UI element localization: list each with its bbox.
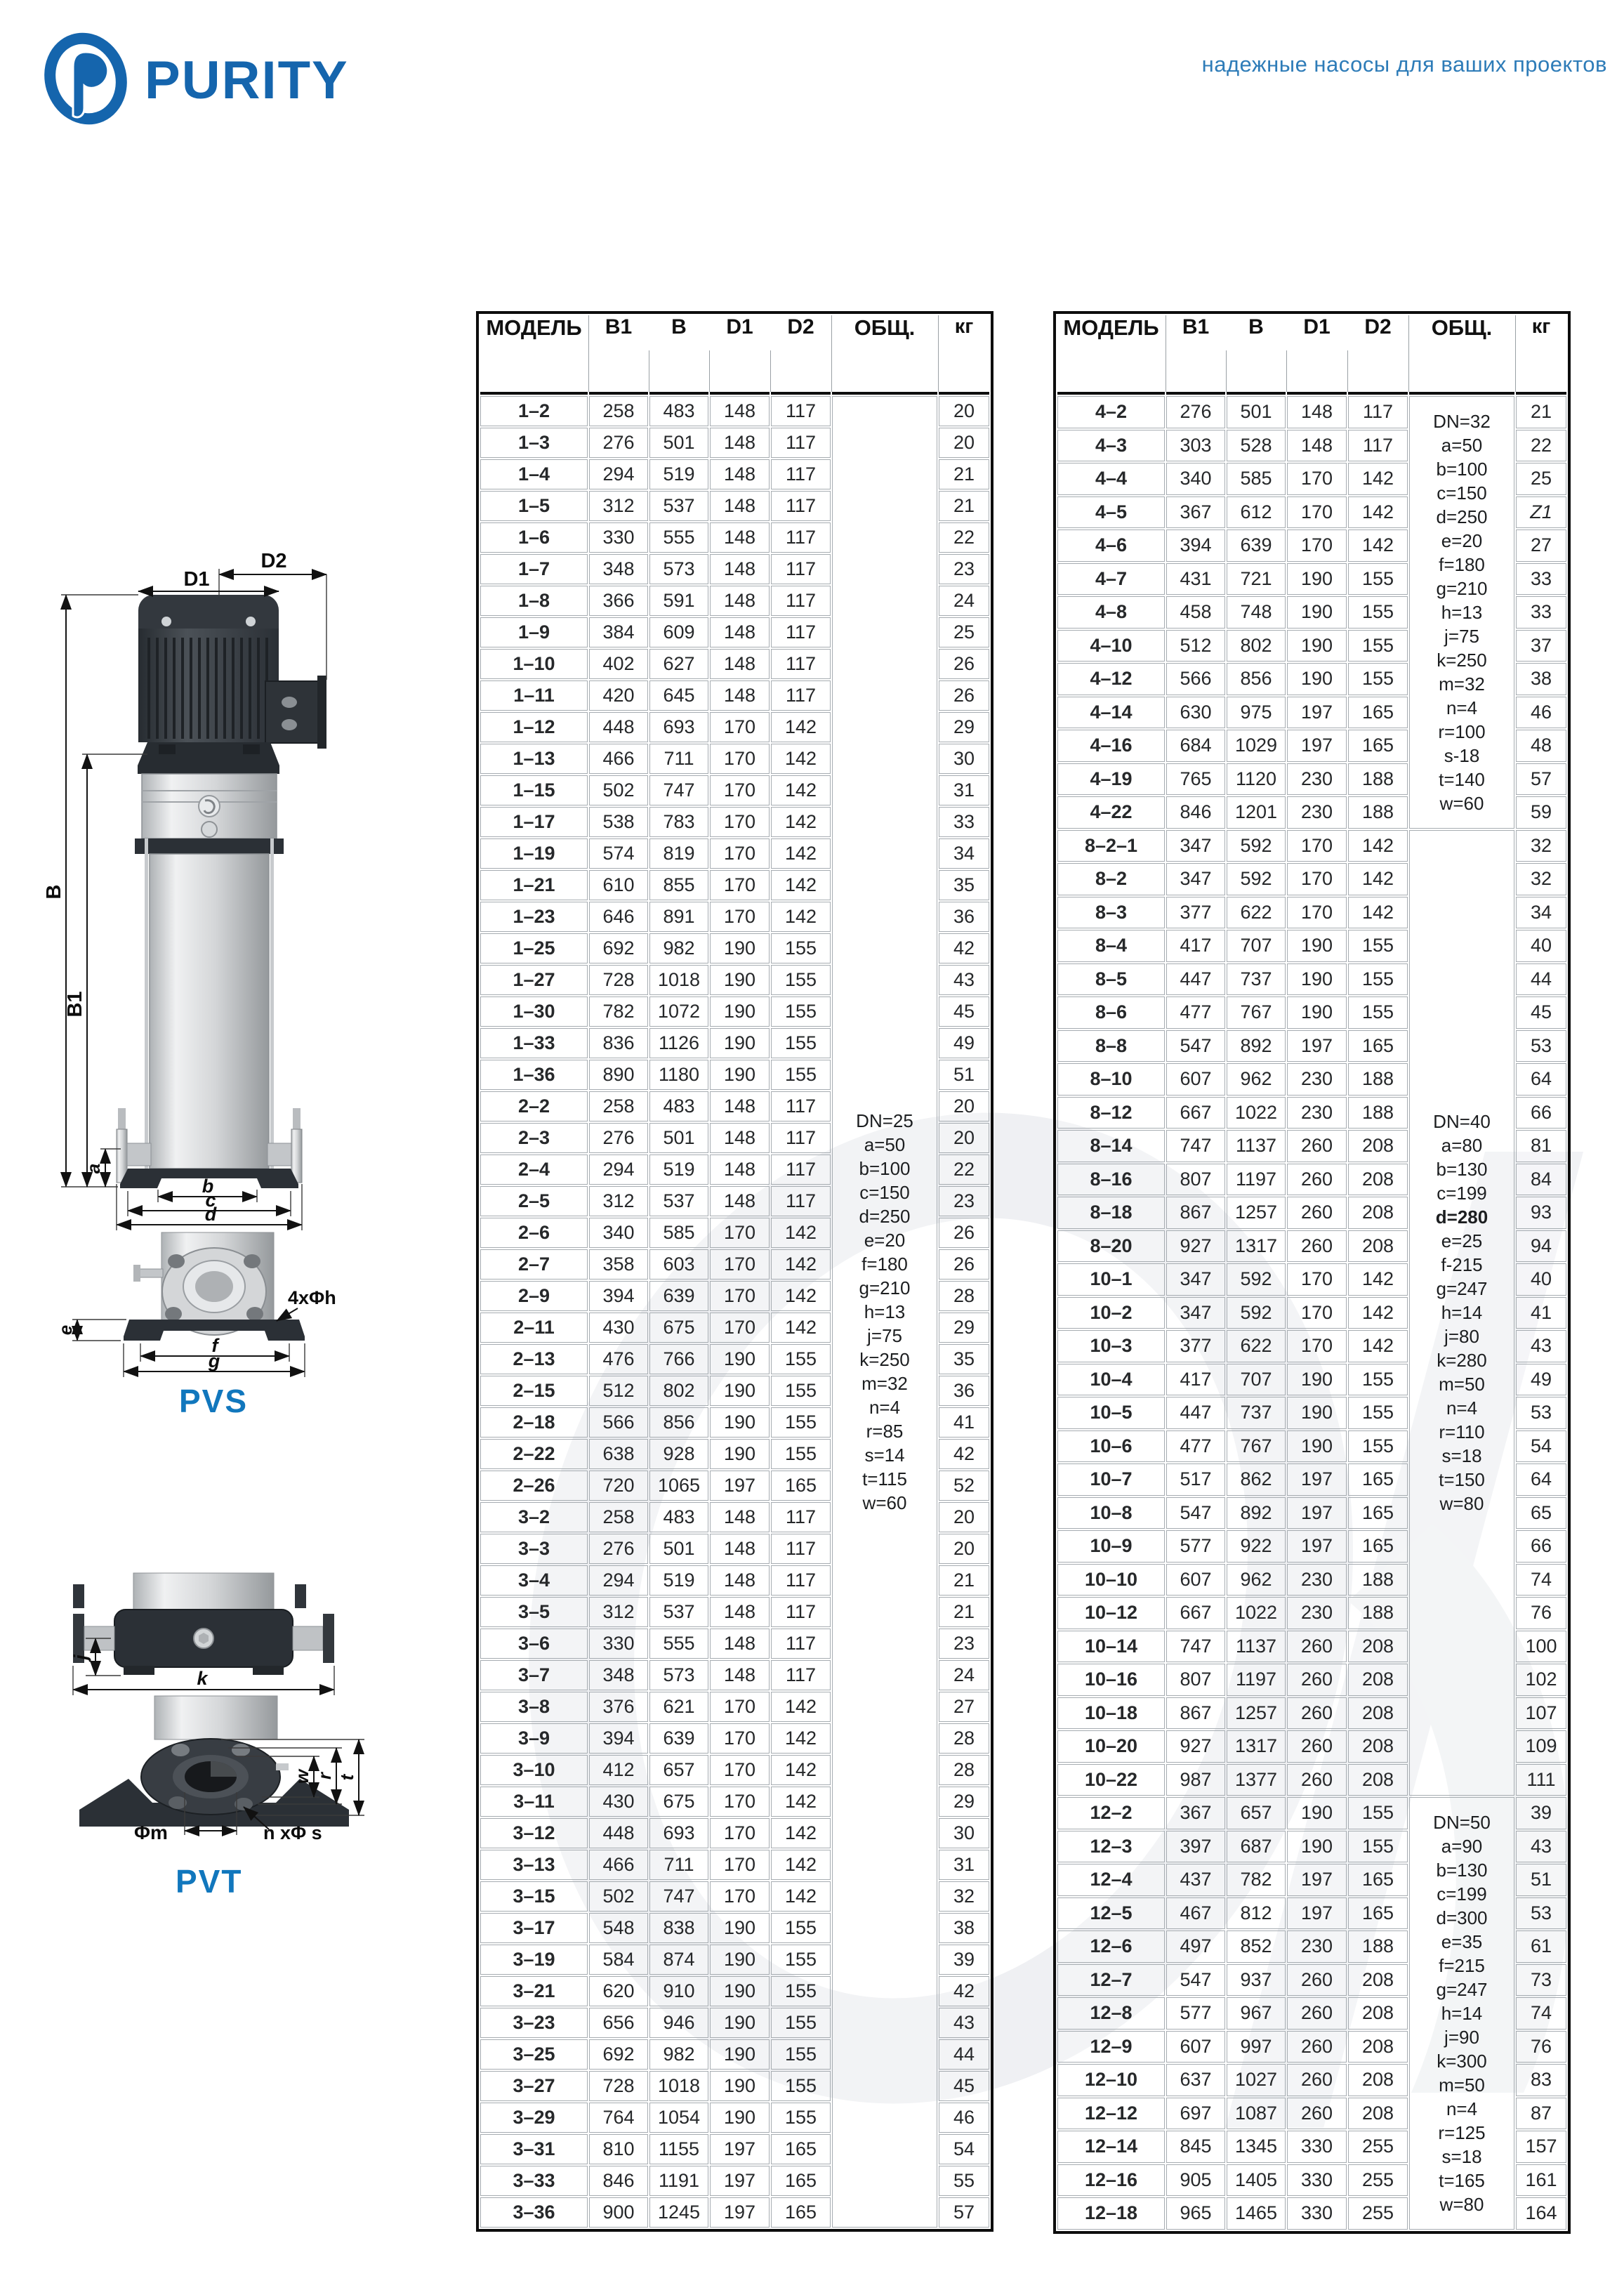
- dimension-cell: 155: [771, 1945, 831, 1975]
- note-line: w=60: [1410, 791, 1514, 815]
- dimension-cell: 347: [1166, 863, 1225, 895]
- model-cell: 2–13: [480, 1344, 588, 1374]
- weight-cell: 94: [1516, 1230, 1566, 1263]
- dimension-cell: 639: [649, 1281, 708, 1311]
- weight-cell: 21: [1516, 396, 1566, 428]
- dimension-cell: 609: [649, 617, 708, 647]
- dimension-cell: 905: [1166, 2164, 1225, 2197]
- note-line: r=100: [1410, 720, 1514, 744]
- dimension-cell: 997: [1227, 2031, 1286, 2063]
- weight-cell: 22: [939, 1155, 989, 1185]
- dimension-cell: 982: [649, 933, 708, 963]
- dimension-cell: 208: [1348, 1164, 1408, 1196]
- dimension-cell: 170: [1287, 863, 1347, 895]
- dimension-cell: 170: [1287, 1297, 1347, 1329]
- stage-seat: [135, 838, 284, 854]
- dimension-cell: 155: [771, 2071, 831, 2101]
- dimension-cell: 117: [771, 522, 831, 553]
- dimension-cell: 812: [1227, 1897, 1286, 1930]
- dimension-cell: 927: [1166, 1730, 1225, 1763]
- dimension-cell: 707: [1227, 1364, 1286, 1396]
- model-cell: 4–5: [1057, 496, 1165, 529]
- model-cell: 4–14: [1057, 697, 1165, 729]
- note-line: b=100: [1410, 457, 1514, 481]
- dimension-cell: 1197: [1227, 1664, 1286, 1696]
- model-cell: 10–1: [1057, 1263, 1165, 1296]
- model-cell: 10–3: [1057, 1330, 1165, 1362]
- note-line: d=250: [1410, 505, 1514, 529]
- dimension-cell: 340: [1166, 463, 1225, 495]
- dimension-cell: 117: [771, 1534, 831, 1564]
- dimension-cell: 982: [649, 2039, 708, 2070]
- dimension-cell: 1191: [649, 2166, 708, 2196]
- note-line: w=80: [1410, 2192, 1514, 2216]
- model-cell: 1–17: [480, 807, 588, 837]
- dimension-cell: 142: [1348, 863, 1408, 895]
- dimension-cell: 170: [710, 712, 770, 742]
- model-cell: 8–2–1: [1057, 830, 1165, 862]
- dimension-cell: 188: [1348, 763, 1408, 796]
- dimension-cell: 711: [649, 1850, 708, 1880]
- dimension-cell: 1180: [649, 1060, 708, 1090]
- common-dimensions-note: DN=32a=50b=100c=150d=250e=20f=180g=210h=…: [1409, 396, 1514, 829]
- weight-cell: 74: [1516, 1997, 1566, 2030]
- dimension-cell: 548: [589, 1913, 648, 1943]
- dim-label-base-d: d: [205, 1204, 217, 1225]
- dimension-cell: 260: [1287, 2064, 1347, 2096]
- weight-cell: 93: [1516, 1197, 1566, 1229]
- dimension-cell: 394: [589, 1281, 648, 1311]
- dimension-cell: 170: [1287, 897, 1347, 929]
- model-cell: 12–8: [1057, 1997, 1165, 2030]
- note-line: DN=32: [1410, 409, 1514, 433]
- dimension-cell: 148: [710, 554, 770, 584]
- dimension-cell: 190: [1287, 563, 1347, 596]
- dimension-cell: 155: [771, 996, 831, 1027]
- model-cell: 10–14: [1057, 1631, 1165, 1663]
- dimension-cell: 294: [589, 1155, 648, 1185]
- dimension-cell: 260: [1287, 1631, 1347, 1663]
- model-cell: 4–4: [1057, 463, 1165, 495]
- dimension-cell: 483: [649, 396, 708, 426]
- model-cell: 8–8: [1057, 1030, 1165, 1063]
- dimension-cell: 447: [1166, 963, 1225, 996]
- weight-cell: 28: [939, 1723, 989, 1754]
- dimension-cell: 190: [710, 996, 770, 1027]
- dimension-cell: 148: [710, 1660, 770, 1690]
- dimension-cell: 807: [1166, 1164, 1225, 1196]
- dimension-cell: 693: [649, 712, 708, 742]
- note-line: b=130: [1410, 1858, 1514, 1882]
- note-line: k=280: [1410, 1348, 1514, 1372]
- dimension-cell: 155: [1348, 663, 1408, 695]
- model-cell: 10–8: [1057, 1497, 1165, 1530]
- dimension-cell: 1137: [1227, 1631, 1286, 1663]
- dimension-cell: 155: [771, 965, 831, 995]
- note-line: e=20: [833, 1228, 937, 1252]
- note-line: a=50: [833, 1133, 937, 1157]
- model-cell: 4–8: [1057, 596, 1165, 629]
- note-line: c=150: [833, 1180, 937, 1204]
- dimension-cell: 117: [771, 428, 831, 458]
- note-line: n=4: [1410, 696, 1514, 720]
- weight-cell: 43: [1516, 1831, 1566, 1863]
- dimension-cell: 260: [1287, 1130, 1347, 1162]
- dimension-cell: 155: [1348, 996, 1408, 1029]
- weight-cell: 100: [1516, 1631, 1566, 1663]
- dimension-cell: 117: [771, 554, 831, 584]
- dimension-cell: 197: [1287, 1897, 1347, 1930]
- dimension-cell: 675: [649, 1313, 708, 1343]
- dimension-cell: 208: [1348, 2064, 1408, 2096]
- dimension-cell: 142: [771, 712, 831, 742]
- model-cell: 3–10: [480, 1755, 588, 1785]
- note-line: g=210: [1410, 577, 1514, 600]
- dimension-cell: 377: [1166, 1330, 1225, 1362]
- dimension-cell: 607: [1166, 1564, 1225, 1596]
- dimension-cell: 148: [710, 1186, 770, 1216]
- dimension-cell: 890: [589, 1060, 648, 1090]
- dimension-cell: 230: [1287, 1597, 1347, 1629]
- column-header-1: B1: [589, 315, 648, 395]
- model-cell: 2–4: [480, 1155, 588, 1185]
- dimension-cell: 190: [1287, 1797, 1347, 1829]
- table-row: 1–2258483148117DN=25a=50b=100c=150d=250e…: [480, 396, 989, 426]
- dimension-cell: 675: [649, 1787, 708, 1817]
- dimension-cell: 165: [771, 1471, 831, 1501]
- dimension-cell: 142: [1348, 897, 1408, 929]
- dimension-cell: 566: [589, 1407, 648, 1438]
- weight-cell: 33: [1516, 563, 1566, 596]
- dimension-cell: 312: [589, 1186, 648, 1216]
- dimension-cell: 170: [710, 744, 770, 774]
- dimension-cell: 208: [1348, 2098, 1408, 2130]
- dimension-cell: 142: [1348, 529, 1408, 562]
- dimension-cell: 765: [1166, 763, 1225, 796]
- pvs-side-view-diagram: D2 D1 B B1 a b c d: [42, 555, 337, 1232]
- dimension-cell: 155: [771, 2008, 831, 2038]
- note-line: f=180: [1410, 553, 1514, 577]
- note-line: f=215: [1410, 1954, 1514, 1978]
- dimension-cell: 190: [1287, 930, 1347, 962]
- model-cell: 4–12: [1057, 663, 1165, 695]
- note-line: m=50: [1410, 1372, 1514, 1396]
- model-cell: 8–10: [1057, 1063, 1165, 1096]
- note-line: n=4: [1410, 2097, 1514, 2121]
- dimension-cell: 517: [1166, 1463, 1225, 1496]
- weight-cell: 25: [939, 617, 989, 647]
- dimension-cell: 197: [1287, 1530, 1347, 1563]
- dimension-cell: 687: [1227, 1831, 1286, 1863]
- weight-cell: 54: [1516, 1430, 1566, 1463]
- dimension-cell: 377: [1166, 897, 1225, 929]
- pvt-side-view-diagram: j k: [42, 1573, 337, 1698]
- model-cell: 12–7: [1057, 1964, 1165, 1997]
- weight-cell: 66: [1516, 1097, 1566, 1129]
- dimension-cell: 190: [1287, 630, 1347, 662]
- weight-cell: 45: [1516, 996, 1566, 1029]
- note-line: s=18: [1410, 1444, 1514, 1468]
- dimension-cell: 922: [1227, 1530, 1286, 1563]
- note-line: m=50: [1410, 2073, 1514, 2097]
- dimension-cell: 638: [589, 1439, 648, 1469]
- dimension-cell: 230: [1287, 1063, 1347, 1096]
- dimension-cell: 607: [1166, 1063, 1225, 1096]
- model-cell: 3–23: [480, 2008, 588, 2038]
- weight-cell: 33: [1516, 596, 1566, 629]
- pvs-flange-view-diagram: e f g 4xΦh: [56, 1232, 358, 1381]
- weight-cell: 39: [939, 1945, 989, 1975]
- weight-cell: 84: [1516, 1164, 1566, 1196]
- note-line: j=75: [1410, 624, 1514, 648]
- weight-cell: 26: [939, 1218, 989, 1248]
- dimension-cell: 585: [649, 1218, 708, 1248]
- dimension-cell: 592: [1227, 1297, 1286, 1329]
- dimension-cell: 547: [1166, 1964, 1225, 1997]
- model-cell: 8–14: [1057, 1130, 1165, 1162]
- dimension-cell: 1405: [1227, 2164, 1286, 2197]
- dimension-cell: 684: [1166, 730, 1225, 762]
- model-cell: 12–6: [1057, 1930, 1165, 1963]
- dimension-cell: 170: [1287, 463, 1347, 495]
- note-line: f=180: [833, 1252, 937, 1276]
- dimension-cell: 155: [1348, 1397, 1408, 1429]
- logo-wordmark: PURITY: [145, 51, 349, 110]
- dimension-cell: 148: [710, 649, 770, 679]
- model-cell: 8–5: [1057, 963, 1165, 996]
- dimension-cell: 476: [589, 1344, 648, 1374]
- dimension-cell: 417: [1166, 1364, 1225, 1396]
- dimension-cell: 519: [649, 459, 708, 489]
- weight-cell: 44: [939, 2039, 989, 2070]
- dimension-cell: 117: [771, 1660, 831, 1690]
- dimension-cell: 148: [710, 1597, 770, 1627]
- dimension-cell: 512: [1166, 630, 1225, 662]
- note-line: m=32: [833, 1371, 937, 1395]
- model-cell: 1–2: [480, 396, 588, 426]
- dimension-cell: 892: [1227, 1030, 1286, 1063]
- dimension-cell: 1065: [649, 1471, 708, 1501]
- dimension-cell: 165: [771, 2197, 831, 2228]
- dimension-cell: 1022: [1227, 1597, 1286, 1629]
- note-line: s-18: [1410, 744, 1514, 768]
- model-cell: 3–33: [480, 2166, 588, 2196]
- model-cell: 2–26: [480, 1471, 588, 1501]
- dim-label-phi-m: Φm: [134, 1822, 168, 1843]
- dimension-cell: 208: [1348, 1997, 1408, 2030]
- dimension-cell: 170: [710, 1249, 770, 1280]
- dimension-cell: 697: [1166, 2098, 1225, 2130]
- dimension-cell: 366: [589, 586, 648, 616]
- model-cell: 12–10: [1057, 2064, 1165, 2096]
- dimension-cell: 117: [771, 1565, 831, 1596]
- dimension-cell: 170: [710, 1692, 770, 1722]
- weight-cell: 20: [939, 1534, 989, 1564]
- dimension-cell: 537: [649, 491, 708, 521]
- weight-cell: 22: [1516, 430, 1566, 462]
- model-cell: 2–6: [480, 1218, 588, 1248]
- dimension-cell: 165: [1348, 1864, 1408, 1896]
- weight-cell: 51: [1516, 1864, 1566, 1896]
- weight-cell: 23: [939, 554, 989, 584]
- dimension-cell: 431: [1166, 563, 1225, 596]
- dimension-cell: 692: [589, 2039, 648, 2070]
- column-header-2: B: [649, 315, 708, 395]
- model-cell: 1–6: [480, 522, 588, 553]
- weight-cell: 33: [939, 807, 989, 837]
- model-cell: 1–3: [480, 428, 588, 458]
- dimension-cell: 946: [649, 2008, 708, 2038]
- dim-label-e: e: [55, 1325, 76, 1335]
- dimension-cell: 260: [1287, 1197, 1347, 1229]
- note-line: w=80: [1410, 1492, 1514, 1515]
- weight-cell: 30: [939, 744, 989, 774]
- model-cell: 3–21: [480, 1976, 588, 2006]
- dimension-cell: 142: [1348, 463, 1408, 495]
- note-line: c=199: [1410, 1181, 1514, 1205]
- dimension-cell: 142: [771, 1723, 831, 1754]
- weight-cell: 53: [1516, 1030, 1566, 1063]
- table-row: 8–2–1347592170142DN=40a=80b=130c=199d=28…: [1057, 830, 1566, 862]
- dimension-cell: 197: [1287, 730, 1347, 762]
- model-cell: 8–20: [1057, 1230, 1165, 1263]
- model-cell: 2–7: [480, 1249, 588, 1280]
- model-cell: 4–3: [1057, 430, 1165, 462]
- weight-cell: 59: [1516, 796, 1566, 829]
- dimension-cell: 737: [1227, 1397, 1286, 1429]
- dimension-cell: 142: [771, 1281, 831, 1311]
- dimension-cell: 721: [1227, 563, 1286, 596]
- dimension-cell: 170: [710, 870, 770, 900]
- note-line: b=100: [833, 1157, 937, 1180]
- dimension-cell: 197: [1287, 1030, 1347, 1063]
- dimension-cell: 720: [589, 1471, 648, 1501]
- dimension-cell: 148: [710, 491, 770, 521]
- common-dimensions-note: DN=40a=80b=130c=199d=280e=25f-215g=247h=…: [1409, 830, 1514, 1796]
- dimension-cell: 142: [771, 902, 831, 932]
- dimension-cell: 230: [1287, 763, 1347, 796]
- dimension-cell: 197: [1287, 1463, 1347, 1496]
- model-cell: 4–16: [1057, 730, 1165, 762]
- dimension-cell: 501: [649, 1123, 708, 1153]
- dimension-cell: 155: [771, 1060, 831, 1090]
- dimension-cell: 276: [589, 428, 648, 458]
- dimension-cell: 1027: [1227, 2064, 1286, 2096]
- dimension-cell: 962: [1227, 1063, 1286, 1096]
- model-cell: 10–10: [1057, 1564, 1165, 1596]
- model-cell: 2–22: [480, 1439, 588, 1469]
- column-header-5: ОБЩ.: [832, 315, 937, 395]
- weight-cell: 38: [1516, 663, 1566, 695]
- weight-cell: 35: [939, 1344, 989, 1374]
- dimension-cell: 197: [1287, 697, 1347, 729]
- dimension-cell: 577: [1166, 1997, 1225, 2030]
- note-line: t=165: [1410, 2169, 1514, 2192]
- dimension-cell: 190: [710, 1976, 770, 2006]
- table-row: 4–2276501148117DN=32a=50b=100c=150d=250e…: [1057, 396, 1566, 428]
- dimension-cell: 190: [710, 2103, 770, 2133]
- note-line: g=247: [1410, 1277, 1514, 1301]
- model-cell: 3–3: [480, 1534, 588, 1564]
- dimension-cell: 622: [1227, 1330, 1286, 1362]
- dimension-cell: 155: [771, 2039, 831, 2070]
- note-line: f-215: [1410, 1253, 1514, 1277]
- dimension-cell: 155: [1348, 930, 1408, 962]
- dimension-cell: 165: [1348, 730, 1408, 762]
- model-cell: 4–6: [1057, 529, 1165, 562]
- dimension-cell: 294: [589, 1565, 648, 1596]
- dimension-cell: 260: [1287, 1164, 1347, 1196]
- model-cell: 1–36: [480, 1060, 588, 1090]
- dimension-cell: 208: [1348, 1230, 1408, 1263]
- dimension-cell: 1029: [1227, 730, 1286, 762]
- dimension-cell: 148: [710, 1565, 770, 1596]
- dimension-cell: 367: [1166, 496, 1225, 529]
- note-line: DN=25: [833, 1109, 937, 1133]
- dimension-cell: 208: [1348, 2031, 1408, 2063]
- model-cell: 12–4: [1057, 1864, 1165, 1896]
- dimension-cell: 417: [1166, 930, 1225, 962]
- dimension-cell: 430: [589, 1313, 648, 1343]
- dimension-cell: 519: [649, 1155, 708, 1185]
- dimension-cell: 170: [710, 1755, 770, 1785]
- model-cell: 3–8: [480, 1692, 588, 1722]
- dimension-cell: 547: [1166, 1030, 1225, 1063]
- dimension-cell: 117: [771, 396, 831, 426]
- model-cell: 3–2: [480, 1502, 588, 1532]
- model-cell: 10–5: [1057, 1397, 1165, 1429]
- dimension-cell: 394: [1166, 529, 1225, 562]
- model-cell: 1–19: [480, 838, 588, 869]
- dimension-cell: 330: [1287, 2197, 1347, 2230]
- dimension-cell: 501: [649, 428, 708, 458]
- dimension-cell: 142: [771, 1218, 831, 1248]
- weight-cell: 24: [939, 586, 989, 616]
- dimension-cell: 188: [1348, 1930, 1408, 1963]
- weight-cell: 87: [1516, 2098, 1566, 2130]
- dimension-cell: 347: [1166, 1263, 1225, 1296]
- weight-cell: 102: [1516, 1664, 1566, 1696]
- dimension-cell: 348: [589, 1660, 648, 1690]
- weight-cell: 42: [939, 1439, 989, 1469]
- dimension-cell: 208: [1348, 1964, 1408, 1997]
- dim-label-w: w: [291, 1768, 312, 1784]
- dimension-cell: 376: [589, 1692, 648, 1722]
- model-cell: 8–2: [1057, 863, 1165, 895]
- dim-label-t: t: [336, 1773, 357, 1780]
- dimension-cell: 142: [771, 1787, 831, 1817]
- dimension-cell: 260: [1287, 1997, 1347, 2030]
- dimension-cell: 937: [1227, 1964, 1286, 1997]
- weight-cell: 28: [939, 1755, 989, 1785]
- dimension-cell: 165: [1348, 1897, 1408, 1930]
- dimension-cell: 1377: [1227, 1764, 1286, 1796]
- dimension-cell: 117: [771, 649, 831, 679]
- dimension-cell: 170: [1287, 830, 1347, 862]
- dimension-cell: 255: [1348, 2197, 1408, 2230]
- weight-cell: 43: [939, 965, 989, 995]
- dimension-cell: 155: [771, 1439, 831, 1469]
- dimension-cell: 573: [649, 554, 708, 584]
- model-cell: 10–16: [1057, 1664, 1165, 1696]
- dimension-cell: 555: [649, 1629, 708, 1659]
- model-cell: 2–9: [480, 1281, 588, 1311]
- dimension-cell: 330: [1287, 2131, 1347, 2163]
- dimension-cell: 458: [1166, 596, 1225, 629]
- dimension-cell: 190: [1287, 1430, 1347, 1463]
- dimension-cell: 190: [710, 2039, 770, 2070]
- dimension-cell: 190: [710, 1028, 770, 1058]
